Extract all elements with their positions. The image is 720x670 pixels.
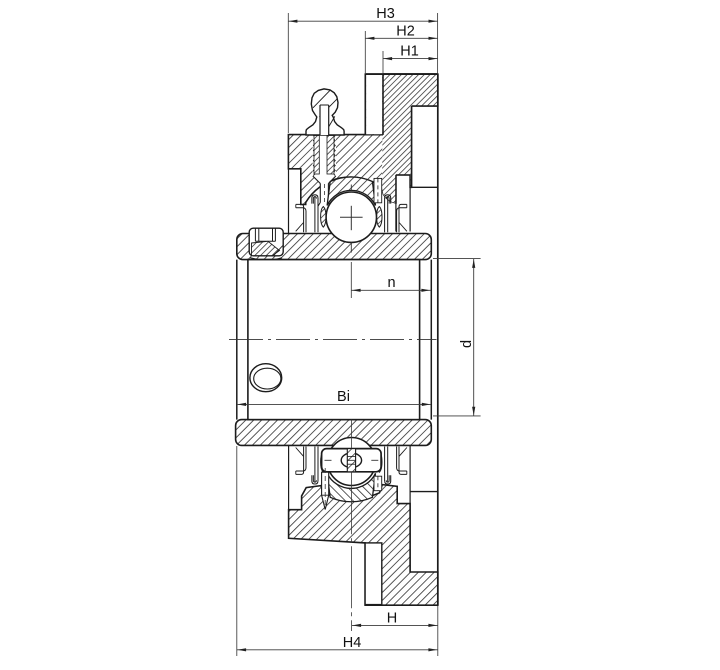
svg-text:H1: H1 — [400, 44, 419, 60]
svg-text:H: H — [387, 610, 397, 626]
svg-text:Bi: Bi — [337, 389, 350, 405]
svg-text:H3: H3 — [376, 6, 395, 22]
svg-text:H4: H4 — [343, 635, 362, 651]
svg-text:d: d — [459, 340, 475, 348]
svg-text:n: n — [387, 275, 395, 291]
svg-text:H2: H2 — [396, 23, 415, 39]
